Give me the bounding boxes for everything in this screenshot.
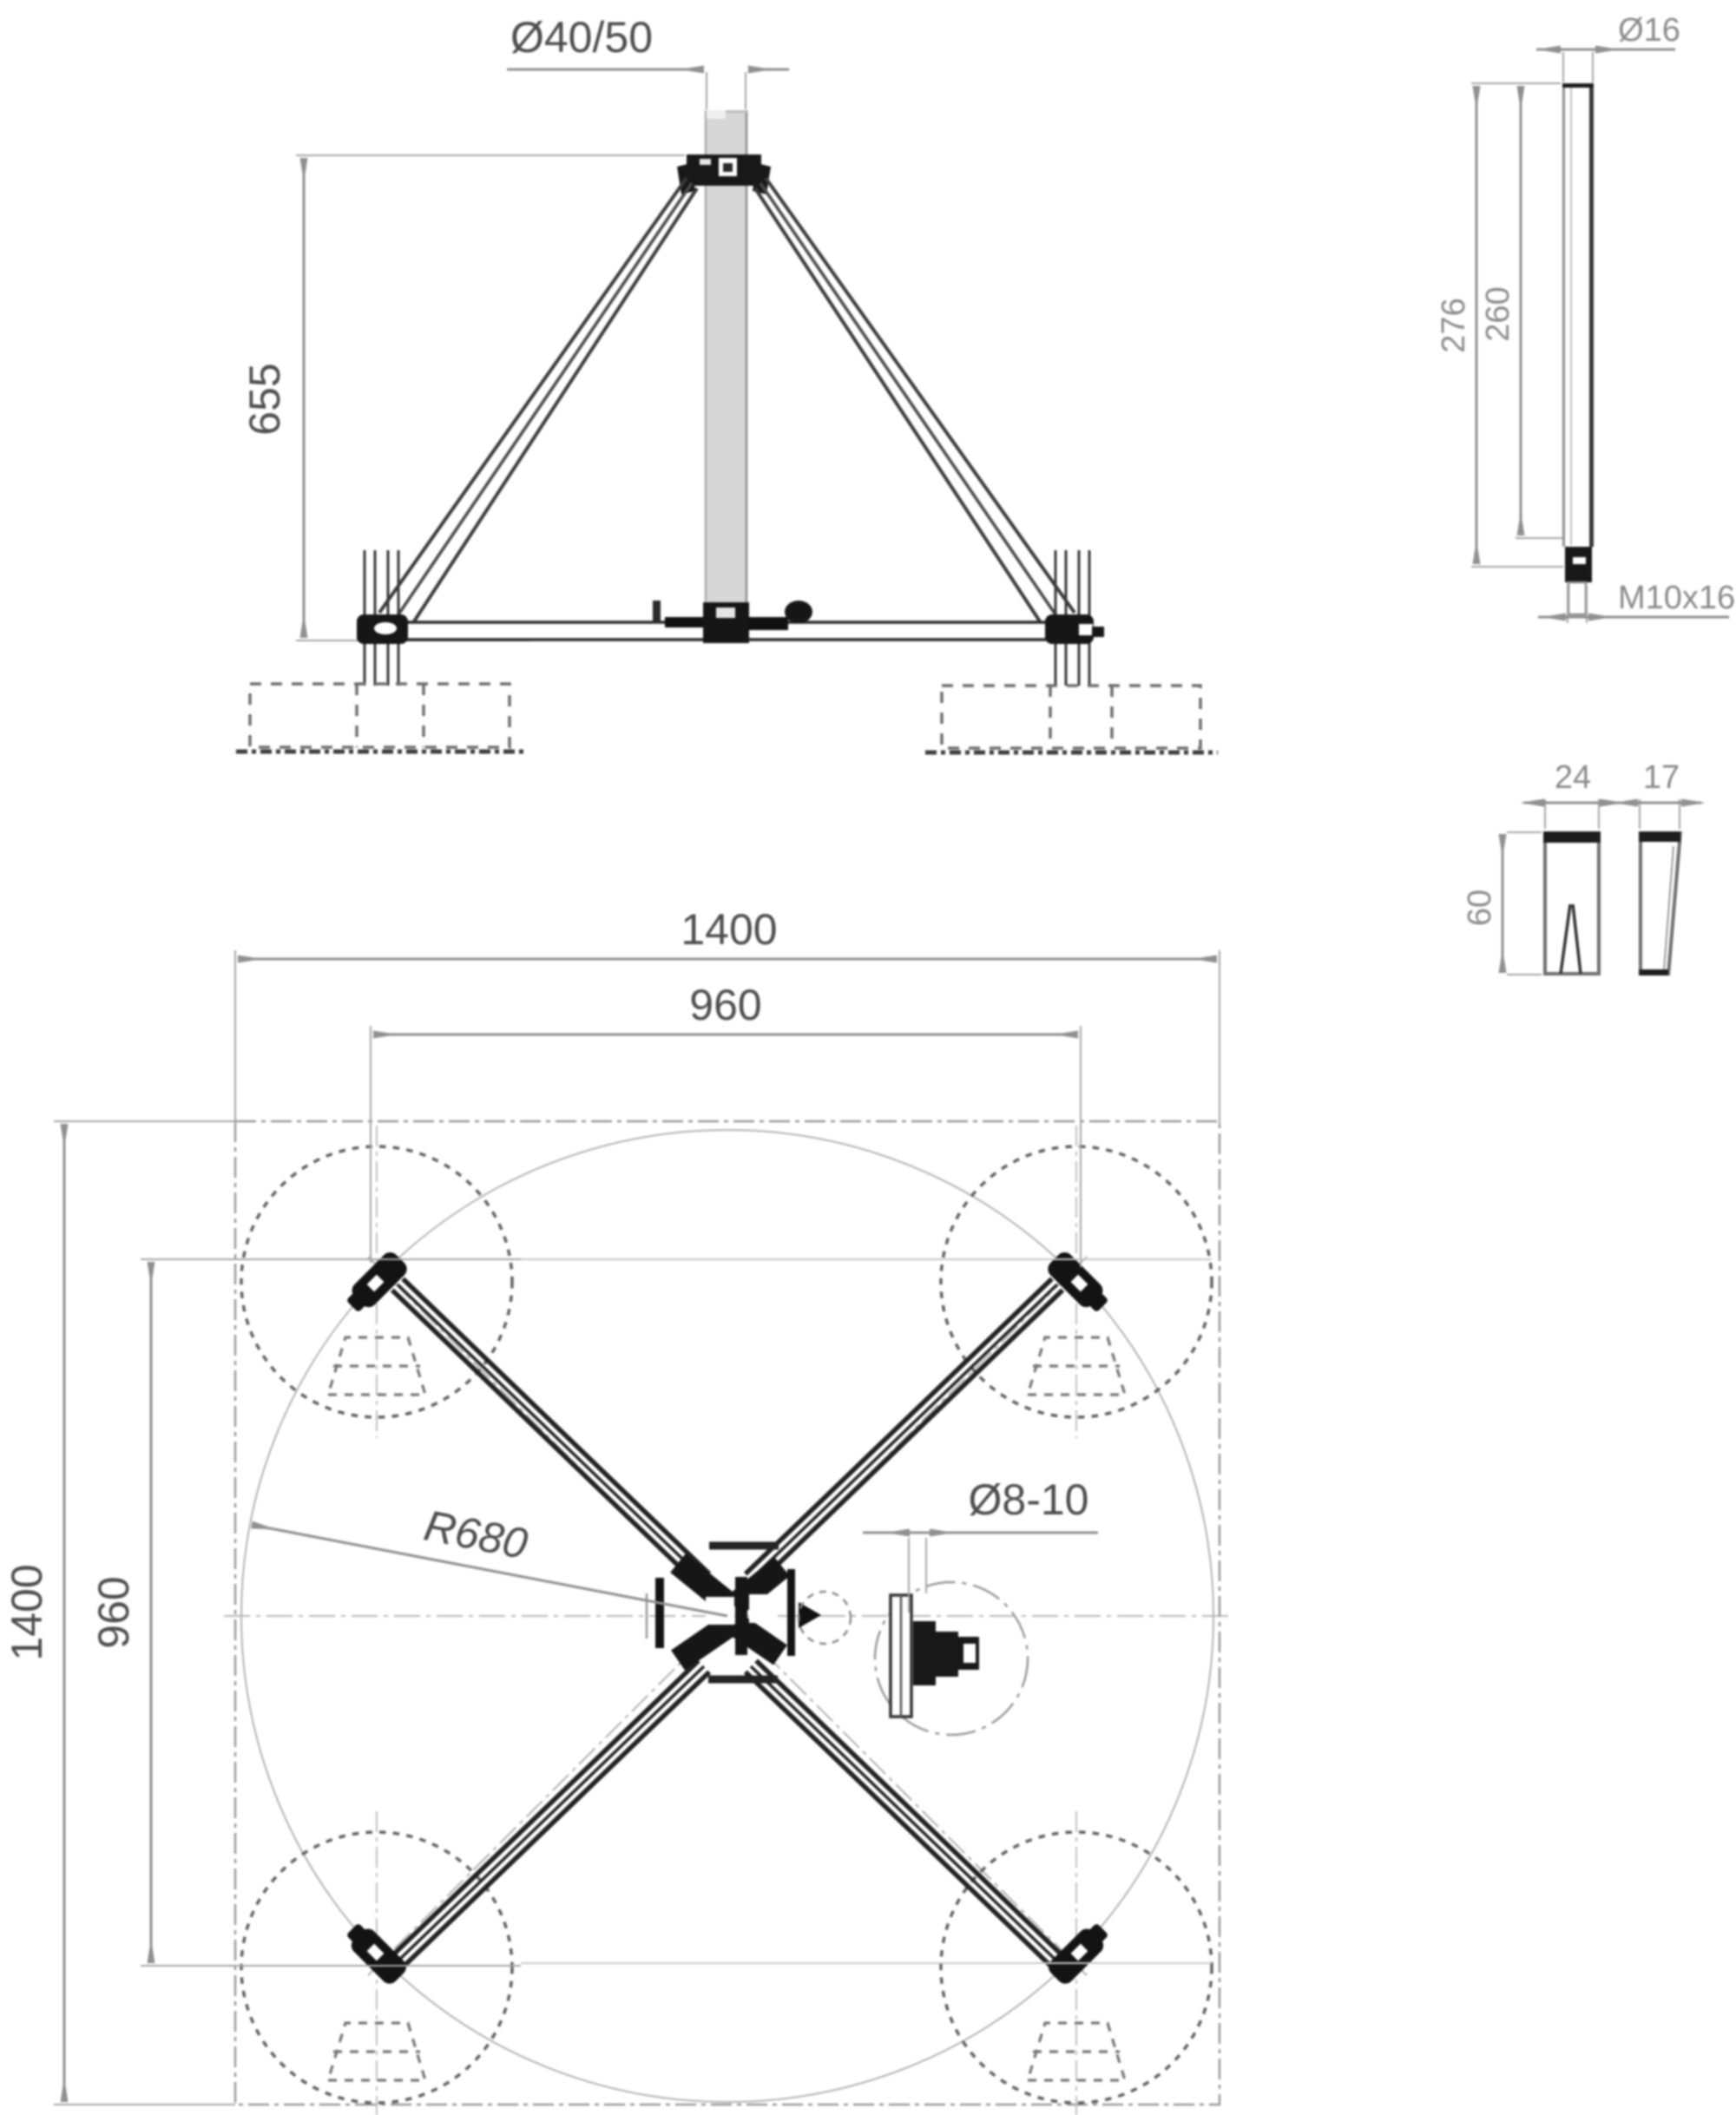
svg-text:M10x16: M10x16 (1618, 580, 1735, 616)
svg-text:60: 60 (1462, 890, 1498, 926)
svg-text:17: 17 (1643, 759, 1680, 796)
svg-text:Ø16: Ø16 (1618, 12, 1680, 49)
svg-text:Ø8-10: Ø8-10 (969, 1475, 1089, 1524)
svg-text:24: 24 (1555, 759, 1591, 796)
svg-text:Ø40/50: Ø40/50 (510, 13, 653, 62)
svg-text:960: 960 (689, 981, 761, 1029)
svg-text:276: 276 (1436, 298, 1472, 352)
svg-text:960: 960 (89, 1576, 138, 1648)
svg-text:R680: R680 (420, 1501, 531, 1568)
svg-text:1400: 1400 (681, 905, 777, 954)
svg-text:1400: 1400 (3, 1564, 51, 1660)
svg-text:260: 260 (1480, 286, 1516, 341)
svg-text:655: 655 (240, 363, 289, 435)
